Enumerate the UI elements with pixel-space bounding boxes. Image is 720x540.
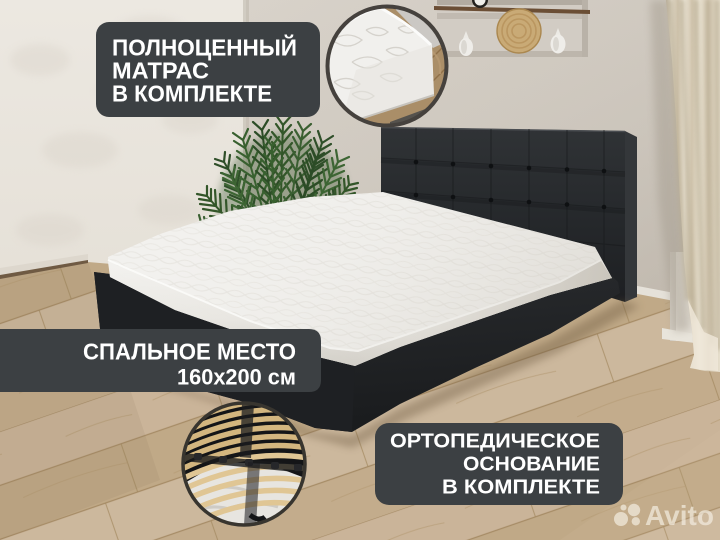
svg-text:ОСНОВАНИЕ: ОСНОВАНИЕ	[463, 454, 600, 476]
svg-text:ПОЛНОЦЕННЫЙ: ПОЛНОЦЕННЫЙ	[112, 34, 297, 61]
svg-text:ОРТОПЕДИЧЕСКОЕ: ОРТОПЕДИЧЕСКОЕ	[390, 431, 600, 453]
svg-text:В КОМПЛЕКТЕ: В КОМПЛЕКТЕ	[442, 477, 600, 499]
svg-text:Avito: Avito	[645, 500, 714, 531]
svg-text:В КОМПЛЕКТЕ: В КОМПЛЕКТЕ	[112, 81, 272, 107]
svg-text:160х200 см: 160х200 см	[177, 365, 296, 390]
svg-text:СПАЛЬНОЕ МЕСТО: СПАЛЬНОЕ МЕСТО	[83, 339, 296, 365]
